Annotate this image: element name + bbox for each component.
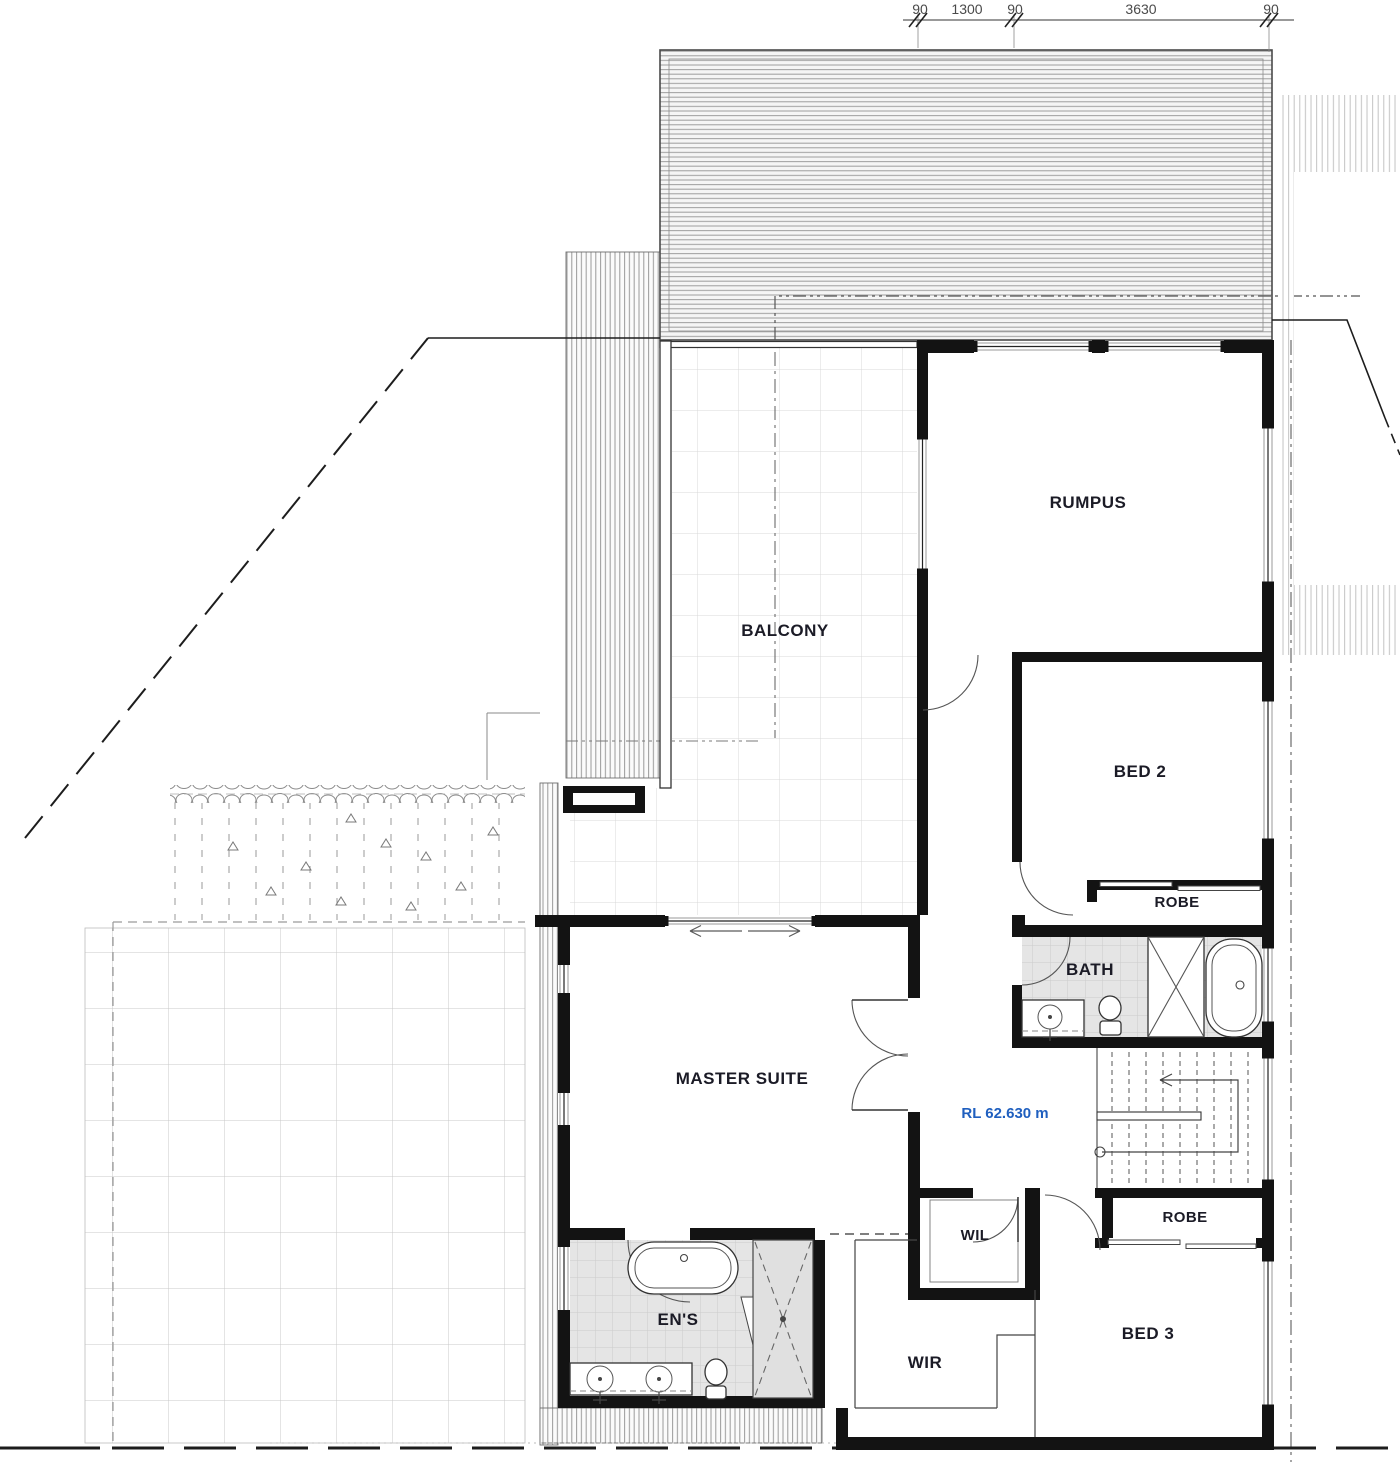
robe-upper-slider-2 bbox=[1178, 886, 1260, 891]
ensuite-toilet-cistern bbox=[706, 1386, 726, 1399]
bath-bathtub-icon bbox=[1206, 939, 1262, 1037]
window bbox=[1105, 341, 1224, 352]
window bbox=[917, 436, 928, 572]
paving-grid bbox=[85, 928, 525, 1443]
window bbox=[558, 1247, 570, 1310]
label-rl-level: RL 62.630 m bbox=[961, 1105, 1048, 1122]
screen-band-mid bbox=[1279, 585, 1400, 655]
window bbox=[1262, 698, 1274, 842]
label-robe-lower: ROBE bbox=[1163, 1209, 1208, 1226]
floor-plan-canvas: 90 1300 90 3630 90 bbox=[0, 0, 1400, 1483]
stair-rail bbox=[1097, 1112, 1201, 1120]
window bbox=[1262, 1258, 1274, 1408]
ensuite-vanity bbox=[570, 1363, 692, 1395]
bath-basin-drain bbox=[1048, 1015, 1052, 1019]
bath-toilet-cistern bbox=[1100, 1021, 1121, 1035]
bottom-deck-strip bbox=[540, 1408, 822, 1443]
window bbox=[974, 341, 1092, 352]
robe-lower-slider-2 bbox=[1186, 1244, 1256, 1249]
robe-lower-slider-1 bbox=[1108, 1240, 1180, 1245]
dim-label-90a: 90 bbox=[912, 1, 928, 17]
bath-toilet-icon bbox=[1099, 996, 1121, 1020]
window bbox=[558, 1093, 570, 1125]
side-deck-strip bbox=[540, 783, 558, 1445]
screen-band-top bbox=[1279, 95, 1400, 172]
label-robe-upper: ROBE bbox=[1155, 894, 1200, 911]
label-rumpus: RUMPUS bbox=[1050, 493, 1127, 512]
ensuite-bathtub-icon bbox=[628, 1242, 738, 1294]
window bbox=[1262, 425, 1274, 585]
roof-over bbox=[660, 50, 1360, 340]
dim-label-90b: 90 bbox=[1007, 1, 1023, 17]
ensuite-toilet-icon bbox=[705, 1359, 727, 1385]
label-ens: EN'S bbox=[658, 1310, 699, 1329]
garden-bed bbox=[170, 803, 525, 920]
screen-strip bbox=[1279, 172, 1294, 585]
label-master-suite: MASTER SUITE bbox=[676, 1069, 809, 1088]
label-bed3: BED 3 bbox=[1122, 1324, 1175, 1343]
dim-label-90c: 90 bbox=[1263, 1, 1279, 17]
balcony-deck-strip bbox=[566, 252, 660, 778]
window bbox=[1262, 1055, 1274, 1183]
balcony-balustrade bbox=[660, 342, 917, 348]
ensuite-shower-drain bbox=[780, 1316, 786, 1322]
balcony-step-tread bbox=[573, 793, 635, 805]
robe-upper-slider-1 bbox=[1100, 882, 1172, 887]
label-wil: WIL bbox=[961, 1227, 990, 1244]
dim-label-3630: 3630 bbox=[1125, 1, 1156, 17]
floor-plan-drawing: 90 1300 90 3630 90 bbox=[0, 0, 1400, 1483]
label-bed2: BED 2 bbox=[1114, 762, 1167, 781]
dim-label-1300: 1300 bbox=[951, 1, 982, 17]
label-balcony: BALCONY bbox=[741, 621, 829, 640]
label-bath: BATH bbox=[1066, 960, 1114, 979]
window bbox=[1262, 945, 1274, 1025]
window bbox=[558, 965, 570, 993]
balcony-left-wall bbox=[660, 341, 671, 788]
label-wir: WIR bbox=[908, 1353, 943, 1372]
